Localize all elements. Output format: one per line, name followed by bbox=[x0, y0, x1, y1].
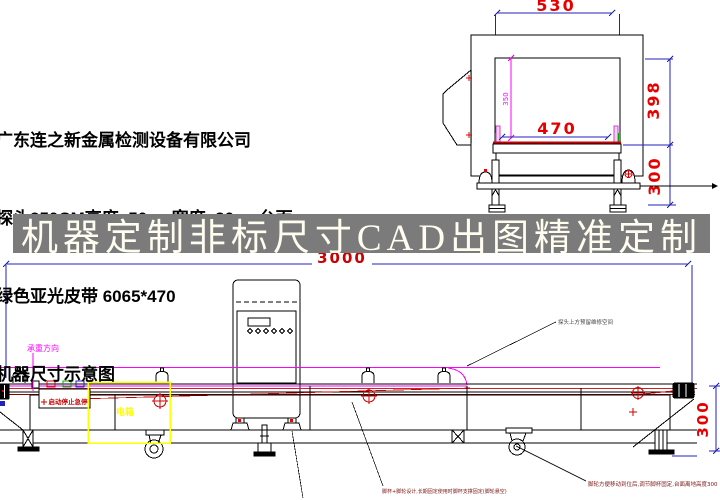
watermark-banner: 机器定制非标尺寸CAD出图精准定制 bbox=[13, 214, 710, 253]
company-info-block: 广东连之新金属检测设备有限公司 探头350CM高度 50cm宽度 30cm台面 … bbox=[0, 76, 356, 440]
dome-left bbox=[479, 172, 492, 183]
right-leg bbox=[649, 430, 674, 454]
brace-x bbox=[452, 430, 464, 443]
ground-leader-arrow bbox=[712, 183, 718, 189]
belt-spec: 绿色亚光皮带 6065*470 bbox=[0, 284, 356, 310]
company-name: 广东连之新金属检测设备有限公司 bbox=[0, 128, 356, 154]
dome-left-light bbox=[484, 169, 487, 172]
drawing-caption: 机器尺寸示意图 bbox=[0, 362, 356, 388]
dim-530-label: 530 bbox=[536, 0, 575, 15]
front-view: 530 350 bbox=[443, 0, 718, 212]
foot-note-left: 脚杯+脚轮设计,长期固定使用时脚杯支撑固定(脚轮悬空) bbox=[382, 488, 507, 495]
foot-note-right: 脚轮方便移动到位后,调节脚杯固定,台面离地高度300 bbox=[588, 480, 718, 488]
dim-300-side-label: 300 bbox=[694, 400, 712, 437]
belt-body bbox=[493, 144, 621, 153]
dim-398-label: 398 bbox=[644, 80, 663, 119]
side-panel bbox=[443, 70, 471, 145]
dim-300-front-label: 300 bbox=[645, 156, 664, 195]
caster-right bbox=[506, 428, 532, 455]
conveyor-bed-front bbox=[496, 153, 619, 175]
cad-screenshot: 530 350 bbox=[0, 0, 720, 500]
drive-roller-right bbox=[673, 383, 694, 398]
dim-350-label: 350 bbox=[502, 92, 510, 105]
watermark-text: 机器定制非标尺寸CAD出图精准定制 bbox=[21, 214, 702, 253]
dim-470-label: 470 bbox=[537, 119, 576, 138]
dome-right-mark bbox=[625, 171, 632, 178]
probe-note: 探头上方预留维修空间 bbox=[558, 318, 613, 326]
belt-post-right bbox=[614, 126, 618, 142]
